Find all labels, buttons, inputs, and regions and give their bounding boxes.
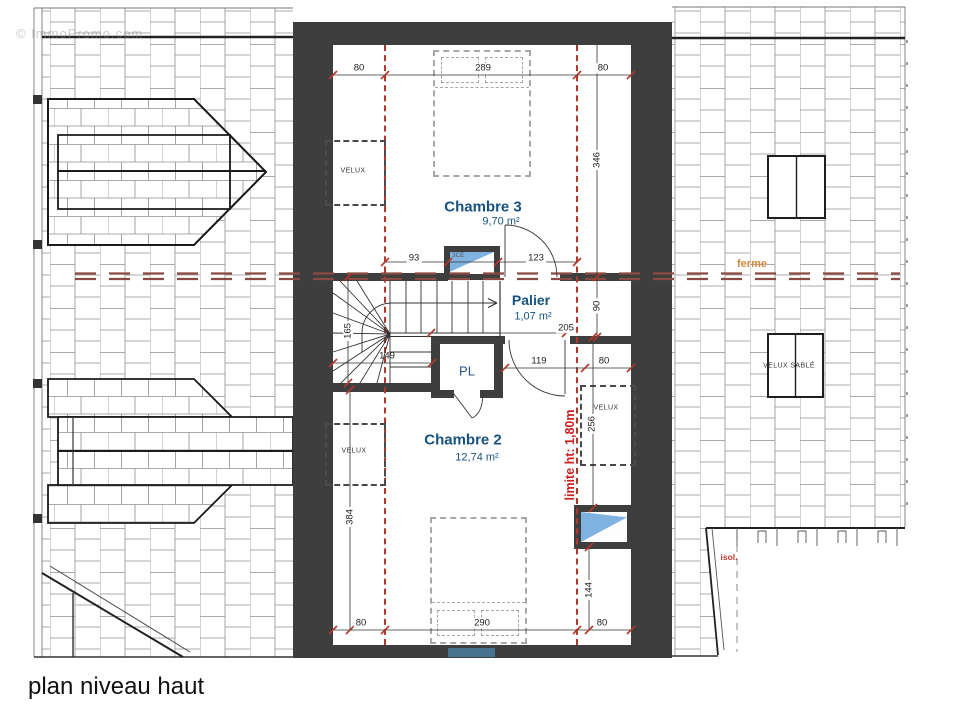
window-right-glazing-icon [581,512,627,542]
dim-velux-right: 80 [597,356,612,366]
dim-c3-bot-left: 93 [407,253,422,263]
room-label-palier: Palier [512,293,550,307]
wall-left [293,22,333,658]
window-right [574,505,634,549]
height-limit-line-right [576,45,578,645]
dim-c3-top-left: 80 [352,63,367,73]
isol-label: isol. [720,552,737,562]
bed-foldline [435,87,529,88]
velux-label-chambre2: VELUX [342,448,367,455]
dim-c3-height: 346 [592,150,602,170]
room-label-pl: PL [459,365,475,378]
dim-c2-height: 384 [345,507,355,527]
dim-palier-width: 205 [556,323,576,333]
dim-window-height: 144 [584,580,594,600]
dim-c2-bot-left: 80 [354,618,369,628]
wall-c3-partition-right [560,273,631,281]
room-area-palier: 1,07 m² [514,312,551,323]
height-limit-line-left [384,45,386,645]
dim-c3-top-right: 80 [596,63,611,73]
dim-stair-left: 165 [343,321,353,341]
velux-sable-label: VELUX SABLÉ [763,363,815,370]
room-area-chambre3: 9,70 m² [482,217,519,228]
door-palier [509,340,565,396]
ferme-label: ferme [737,258,767,270]
wall-c3-partition-left [333,273,448,281]
dim-c3-bot-right: 123 [526,253,546,263]
dim-stair-width: 149 [377,351,397,361]
room-area-chambre2: 12,74 m² [455,453,498,464]
wall-top [295,22,672,45]
room-label-chambre2: Chambre 2 [424,433,502,448]
wall-pl-right [494,336,503,398]
dim-pl-right: 119 [529,356,548,366]
floor-plan-page: 3CE [0,0,974,720]
wall-pl-bottom-right [480,390,494,398]
window-bottom [448,648,495,657]
skylight-upper [768,156,825,218]
pillow [437,610,475,636]
watermark: © ImmoPromo.com [16,26,143,41]
dim-velux-height: 256 [587,414,597,434]
wall-right [631,22,672,658]
right-roof [672,7,907,656]
dim-c2-bot-mid: 290 [472,618,492,628]
velux-label-chambre3: VELUX [341,168,366,175]
bed-foldline [432,602,525,603]
door-chambre3 [505,225,557,277]
plan-title: plan niveau haut [28,673,204,701]
velux-box-chambre2 [325,423,386,486]
dim-palier-height: 90 [592,299,602,314]
velux-label-right: VELUX [594,405,619,412]
room-label-chambre3: Chambre 3 [444,200,522,215]
height-limit-label: limite ht: 1,80m [563,405,577,505]
window-right-glass [581,512,627,542]
wall-pl-bottom-left [440,390,454,398]
wall-palier-south-right [570,336,631,344]
wall-pl-left [431,336,440,398]
wall-stairwell-south [333,383,432,392]
dormer-upper-left [48,99,266,245]
dim-c2-bot-right: 80 [595,618,610,628]
dim-c3-top-mid: 289 [473,63,493,73]
left-roof [33,8,293,657]
window-ref-label: 3CE [452,253,465,260]
door-pl [454,394,483,418]
dormer-lower-left [48,379,293,523]
